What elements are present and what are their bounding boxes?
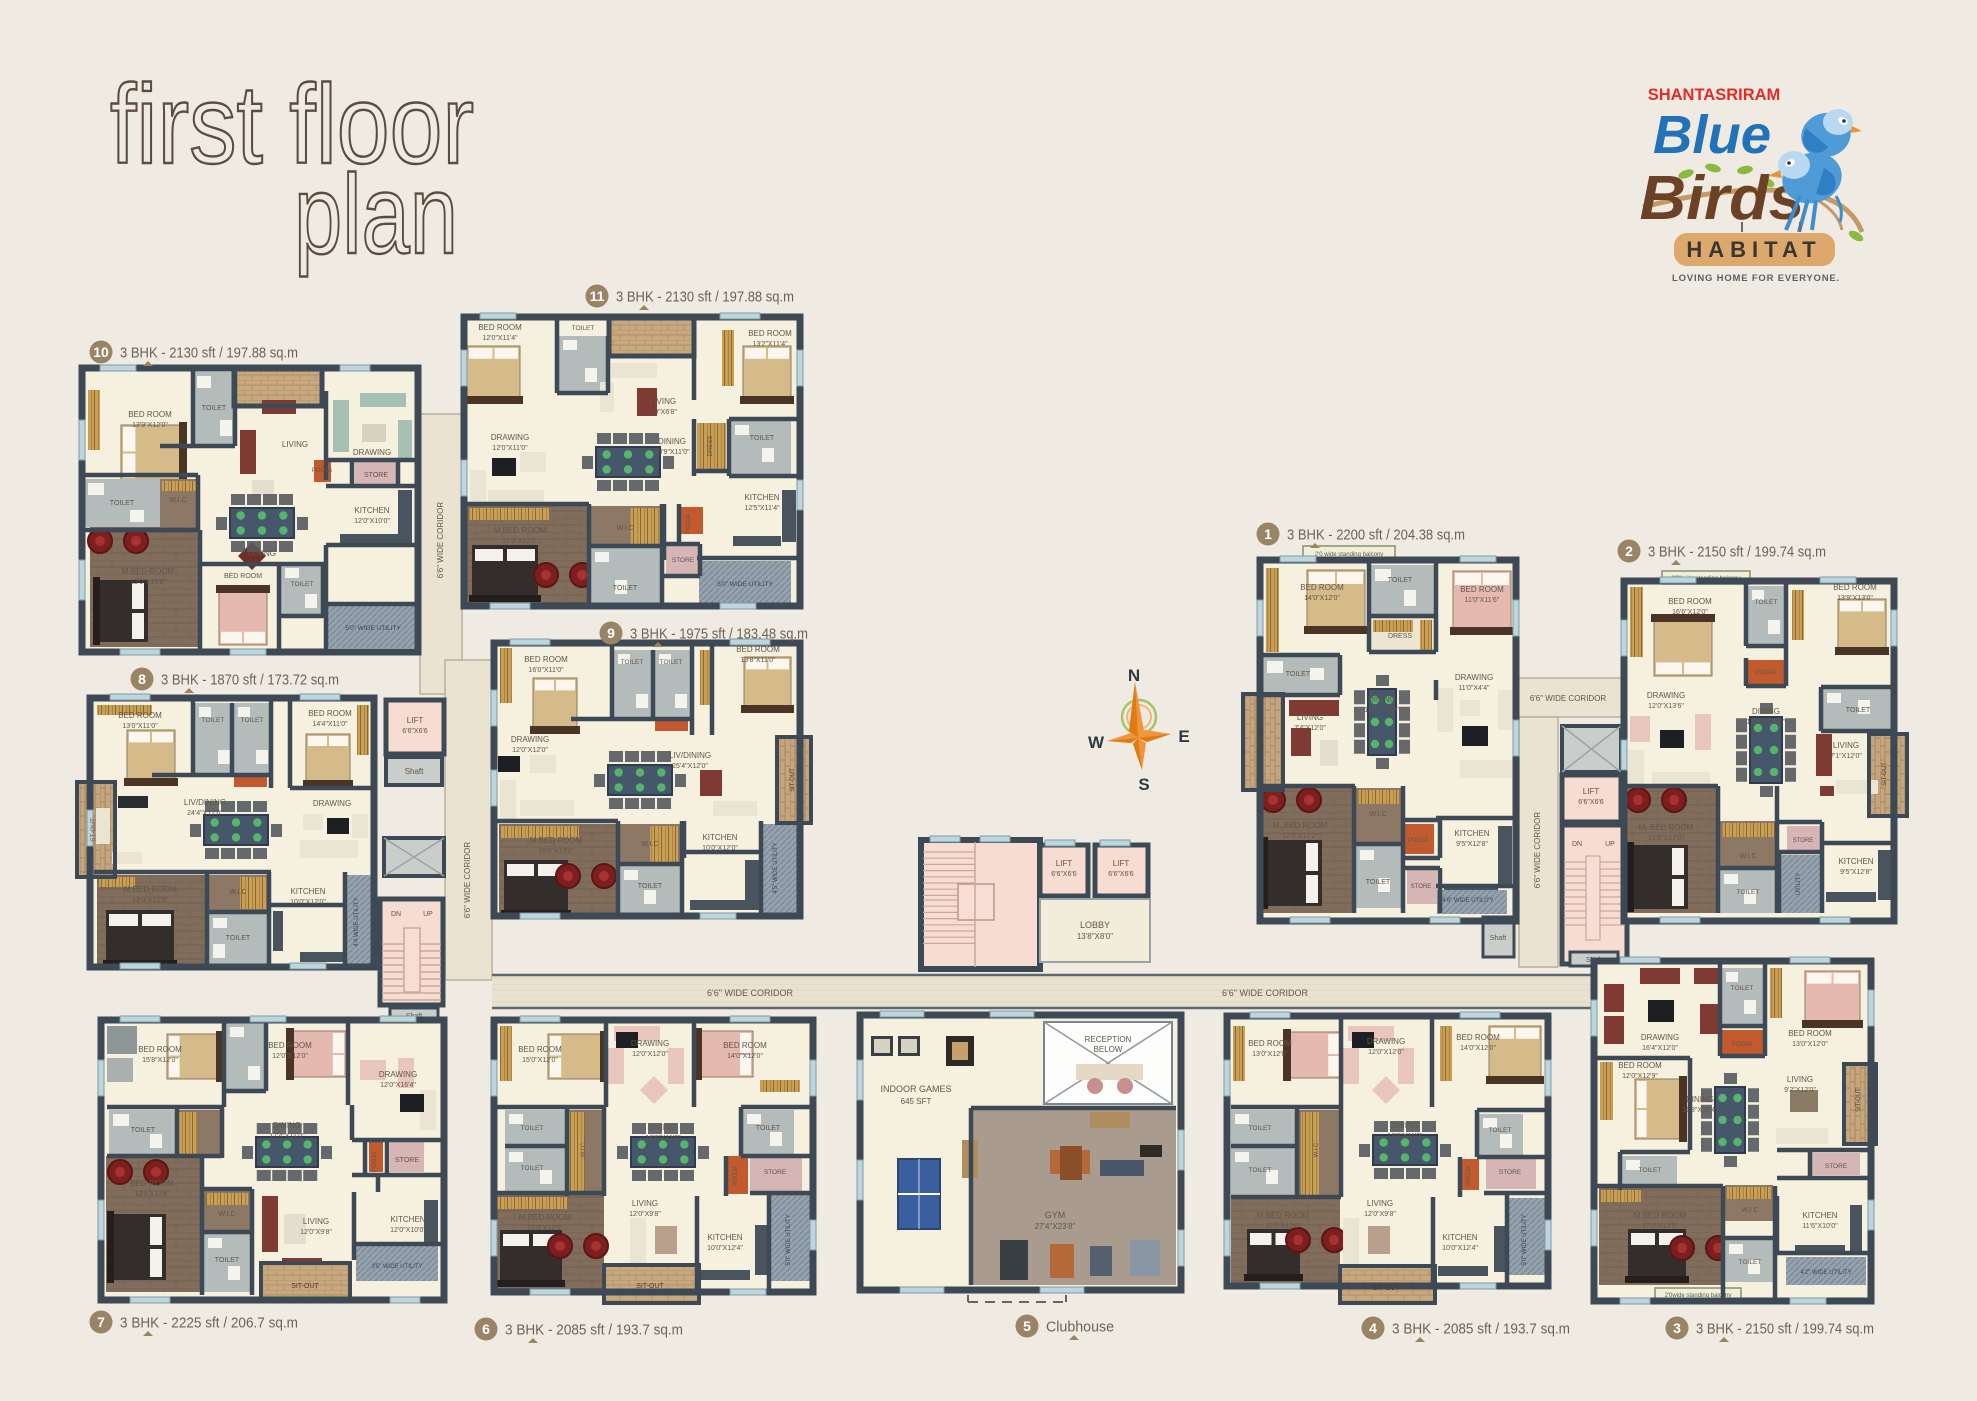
svg-text:9'5"X12'8": 9'5"X12'8" [1840,869,1872,876]
svg-text:BED ROOM: BED ROOM [736,645,780,654]
svg-text:DRAWING: DRAWING [511,735,549,744]
svg-text:10'0"X12'0": 10'0"X12'0" [702,845,738,852]
svg-text:TOILET: TOILET [1731,985,1754,992]
svg-text:BED ROOM: BED ROOM [524,655,568,664]
svg-text:17'0"X12'0": 17'0"X12'0" [502,538,538,545]
svg-text:TOILET: TOILET [756,1125,781,1132]
svg-text:4'6" WIDE UTILITY: 4'6" WIDE UTILITY [1442,898,1493,904]
svg-text:M.BED ROOM: M.BED ROOM [124,885,177,894]
svg-text:3 BHK - 2130 sft / 197.88 sq.m: 3 BHK - 2130 sft / 197.88 sq.m [120,346,298,362]
svg-text:TOILET: TOILET [521,1165,544,1172]
svg-text:POOJA: POOJA [312,468,332,474]
svg-text:4'4 WIDE UTILITY: 4'4 WIDE UTILITY [354,897,360,946]
svg-text:13'0"X16'8": 13'0"X16'8" [130,579,166,586]
svg-text:W: W [1088,733,1105,752]
svg-text:7'1"X12'0": 7'1"X12'0" [1830,753,1862,760]
svg-text:10'0"X12'4": 10'0"X12'4" [707,1245,743,1252]
svg-text:POOJA: POOJA [1756,670,1776,676]
svg-text:DRAWING: DRAWING [631,1039,669,1048]
svg-text:3 BHK - 2150 sft / 199.74 sq.m: 3 BHK - 2150 sft / 199.74 sq.m [1696,1322,1874,1338]
svg-text:12'0"X11'0": 12'0"X11'0" [492,445,528,452]
svg-text:DINING: DINING [248,549,276,558]
svg-text:12'0"X18'4": 12'0"X18'4" [1364,707,1400,714]
svg-text:LIVING: LIVING [632,1199,658,1208]
svg-text:plan: plan [294,152,458,277]
svg-text:12'0"X10'0": 12'0"X10'0" [354,518,390,525]
svg-text:STORE: STORE [764,1169,787,1176]
svg-text:5'0" WIDE UTILITY: 5'0" WIDE UTILITY [1522,1214,1528,1265]
svg-text:LIV/DINING: LIV/DINING [184,798,226,807]
svg-text:TOILET: TOILET [241,717,264,724]
svg-text:6'6"X6'6: 6'6"X6'6 [1051,871,1077,878]
svg-text:2: 2 [1625,543,1633,559]
svg-text:18'9"X11'0": 18'9"X11'0" [654,449,690,456]
svg-text:Clubhouse: Clubhouse [1046,1320,1114,1336]
svg-text:5'0" WIDE UTILITY: 5'0" WIDE UTILITY [717,581,773,588]
svg-text:11: 11 [590,288,605,304]
svg-text:POOJA: POOJA [1408,838,1428,844]
svg-text:SHANTASRIRAM: SHANTASRIRAM [1648,86,1781,104]
svg-text:6: 6 [482,1321,490,1337]
svg-text:S: S [1138,775,1149,794]
svg-text:BED ROOM: BED ROOM [1668,597,1712,606]
svg-text:DN: DN [391,911,401,918]
svg-text:BED ROOM: BED ROOM [1456,1033,1500,1042]
svg-text:TOILET: TOILET [613,585,638,592]
svg-text:DINING: DINING [273,1121,301,1130]
svg-text:BED ROOM: BED ROOM [224,573,262,580]
svg-text:TOILET: TOILET [1388,577,1413,584]
svg-text:12'0"X11'4": 12'0"X11'4" [482,335,518,342]
svg-text:3: 3 [1673,1320,1681,1336]
svg-text:9'2"X12'0": 9'2"X12'0" [1784,1087,1816,1094]
svg-text:3 BHK - 2085 sft / 193.7 sq.m: 3 BHK - 2085 sft / 193.7 sq.m [1392,1322,1570,1338]
svg-text:TOILET: TOILET [202,717,225,724]
svg-text:6'6"X6'6: 6'6"X6'6 [1578,799,1604,806]
svg-text:27'4"X23'8": 27'4"X23'8" [1035,1222,1076,1231]
svg-text:TOILET: TOILET [131,1127,156,1134]
svg-text:M.BED ROOM: M.BED ROOM [519,1213,572,1222]
svg-text:6'6" WIDE CORIDOR: 6'6" WIDE CORIDOR [1530,694,1607,703]
svg-text:LIVING: LIVING [303,1217,329,1226]
svg-text:BED ROOM: BED ROOM [1300,583,1344,592]
svg-text:BED ROOM: BED ROOM [748,329,792,338]
svg-text:LIVING: LIVING [282,440,308,449]
svg-text:DRAWING: DRAWING [353,448,391,457]
svg-text:W.I.C: W.I.C [616,525,633,532]
svg-text:TOILET: TOILET [1286,671,1311,678]
svg-text:KITCHEN: KITCHEN [702,833,737,842]
svg-text:12'0"X17'2": 12'0"X17'2" [1282,833,1318,840]
svg-text:KITCHEN: KITCHEN [390,1215,425,1224]
svg-text:12'5"X11'4": 12'5"X11'4" [744,505,780,512]
svg-text:KITCHEN: KITCHEN [354,506,389,515]
svg-text:12'0"X13'6": 12'0"X13'6" [1648,703,1684,710]
svg-text:DINING: DINING [1752,707,1780,716]
svg-text:LIVING: LIVING [1367,1199,1393,1208]
svg-text:25'4"X12'0": 25'4"X12'0" [672,763,708,770]
svg-text:9'5"X12'8": 9'5"X12'8" [1456,841,1488,848]
svg-text:6'6"X6'6: 6'6"X6'6 [402,728,428,735]
svg-text:12'0"X9'8": 12'0"X9'8" [300,1229,332,1236]
svg-text:15'0"X12'0": 15'0"X12'0" [522,1057,558,1064]
svg-text:GYM: GYM [1045,1210,1066,1220]
svg-text:TOILET: TOILET [1366,879,1391,886]
svg-text:M. BED ROOM: M. BED ROOM [1273,821,1328,830]
svg-text:7: 7 [97,1314,105,1330]
svg-text:LIVING: LIVING [1787,1075,1813,1084]
svg-text:17'0"X12'9": 17'0"X12'9" [1642,1223,1678,1230]
svg-text:11'0"X11'6": 11'0"X11'6" [1465,597,1500,604]
svg-text:TOILET: TOILET [1249,1125,1272,1132]
svg-text:BED ROOM: BED ROOM [130,1179,174,1188]
svg-text:BED ROOM: BED ROOM [308,709,352,718]
svg-text:LIFT: LIFT [1583,787,1600,796]
svg-text:16'6"X11'0": 16'6"X11'0" [645,1135,681,1142]
svg-text:TOILET: TOILET [1639,1167,1662,1174]
svg-text:BED ROOM: BED ROOM [1833,583,1877,592]
svg-text:12'0"X12'0": 12'0"X12'0" [512,747,548,754]
svg-text:LIVING: LIVING [1833,741,1859,750]
svg-text:KITCHEN: KITCHEN [707,1233,742,1242]
svg-text:DRAWING: DRAWING [491,433,529,442]
svg-text:TOILET: TOILET [1846,707,1871,714]
svg-text:9: 9 [607,625,615,641]
svg-text:POOJA: POOJA [686,514,692,534]
svg-text:BED ROOM: BED ROOM [1248,1039,1292,1048]
svg-text:11'8"X16'4": 11'8"X16'4" [1682,1107,1718,1114]
svg-text:3 BHK - 2150 sft / 199.74 sq.m: 3 BHK - 2150 sft / 199.74 sq.m [1648,545,1826,561]
svg-text:LIVING: LIVING [1297,713,1323,722]
svg-text:14'0"X12'0": 14'0"X12'0" [1460,1045,1496,1052]
svg-text:BED ROOM: BED ROOM [138,1045,182,1054]
svg-text:BED ROOM: BED ROOM [1460,585,1504,594]
svg-text:LOVING HOME FOR EVERYONE.: LOVING HOME FOR EVERYONE. [1672,273,1840,284]
svg-text:INDOOR GAMES: INDOOR GAMES [880,1084,951,1094]
svg-text:10'0"X12'0": 10'0"X12'0" [290,899,326,906]
svg-text:KITCHEN: KITCHEN [744,493,779,502]
svg-text:W.I.C: W.I.C [218,1211,235,1218]
svg-text:SIT-OUT: SIT-OUT [291,1283,319,1290]
svg-text:BED ROOM: BED ROOM [1618,1061,1662,1070]
svg-text:TOILET: TOILET [226,935,251,942]
svg-text:12'0"X9'8": 12'0"X9'8" [1364,1211,1396,1218]
svg-text:12'0"X12'0": 12'0"X12'0" [1368,1049,1404,1056]
svg-text:TOILET: TOILET [215,1257,240,1264]
svg-text:12'0"X9'8": 12'0"X9'8" [629,1211,661,1218]
svg-text:13'9"X13'0": 13'9"X13'0" [1837,595,1873,602]
svg-text:7'4"X12'0": 7'4"X12'0" [1294,725,1326,732]
svg-text:10'0"X12'4": 10'0"X12'4" [1442,1245,1478,1252]
svg-text:12'0"X16'4": 12'0"X16'4" [380,1082,416,1089]
svg-text:6'6" WIDE CORIDOR: 6'6" WIDE CORIDOR [463,842,472,919]
svg-text:TOILET: TOILET [1739,1259,1762,1266]
svg-text:3 BHK - 2130 sft / 197.88 sq: 3 BHK - 2130 sft / 197.88 sq.m [616,290,794,306]
svg-text:Shaft: Shaft [1490,935,1506,942]
svg-text:N: N [1128,666,1140,685]
svg-text:15'0"X12'0": 15'0"X12'0" [527,1225,563,1232]
svg-text:3 BHK - 2225 sft / 206.7 sq.m: 3 BHK - 2225 sft / 206.7 sq.m [120,1316,298,1332]
svg-text:SIT-OUT: SIT-OUT [790,768,796,792]
svg-text:16'6"X11'0": 16'6"X11'0" [1387,1133,1423,1140]
svg-text:SIT-OUT: SIT-OUT [1882,762,1888,786]
svg-text:KITCHEN: KITCHEN [1802,1211,1837,1220]
svg-text:4'5" WIDE UTILITY: 4'5" WIDE UTILITY [773,842,779,893]
svg-text:DRAWING: DRAWING [313,799,351,808]
svg-text:645 SFT: 645 SFT [901,1097,932,1106]
svg-text:Blue: Blue [1653,105,1771,165]
svg-text:BED ROOM: BED ROOM [478,323,522,332]
svg-text:15'8"X12'0": 15'8"X12'0" [142,1057,178,1064]
svg-text:KITCHEN: KITCHEN [1454,829,1489,838]
svg-text:4: 4 [1369,1320,1377,1336]
svg-text:DINING: DINING [1368,695,1396,704]
svg-text:M.BED ROOM: M.BED ROOM [122,567,175,576]
svg-text:10: 10 [93,344,109,360]
svg-text:STORE: STORE [1499,1169,1522,1176]
svg-text:4'2" WIDE UTILITY: 4'2" WIDE UTILITY [1800,1270,1851,1276]
svg-text:5'0" WIDE UTILITY: 5'0" WIDE UTILITY [345,625,401,632]
svg-text:W.I.C: W.I.C [1739,853,1756,860]
svg-text:M.BED ROOM: M.BED ROOM [1634,1211,1687,1220]
svg-text:W.I.C: W.I.C [641,841,658,848]
svg-text:16'0"X11'0": 16'0"X11'0" [528,667,564,674]
svg-text:16'6"X12'0": 16'6"X12'0" [1672,609,1708,616]
svg-text:DRAWING: DRAWING [1455,673,1493,682]
svg-text:TOILET: TOILET [202,405,227,412]
svg-text:STORE: STORE [672,557,695,564]
svg-text:6'6" WIDE CORIDOR: 6'6" WIDE CORIDOR [707,988,793,998]
svg-text:LIFT: LIFT [407,716,424,725]
svg-text:M.BED ROOM: M.BED ROOM [530,836,583,845]
svg-text:POOJA: POOJA [1466,1166,1472,1186]
svg-text:13'0"X12'0": 13'0"X12'0" [132,897,168,904]
svg-text:DRAWING: DRAWING [1641,1033,1679,1042]
svg-text:DINING: DINING [1391,1121,1419,1130]
svg-text:13'2"X11'4": 13'2"X11'4" [752,341,788,348]
svg-text:STORE: STORE [364,472,388,479]
svg-text:LIV/DINING: LIV/DINING [669,751,711,760]
svg-text:11'0"X4'4": 11'0"X4'4" [1458,685,1490,692]
svg-text:DINING: DINING [1686,1095,1714,1104]
svg-text:TOILET: TOILET [750,435,775,442]
svg-text:TOILET: TOILET [621,659,644,666]
svg-text:UP: UP [1605,841,1615,848]
svg-text:M. BED ROOM: M. BED ROOM [1639,823,1694,832]
svg-text:LOBBY: LOBBY [1080,920,1110,930]
svg-text:POOJA: POOJA [1732,1042,1752,1048]
svg-text:5: 5 [1023,1318,1031,1334]
svg-text:3 BHK - 2200 sft / 204.38 sq.m: 3 BHK - 2200 sft / 204.38 sq.m [1287,528,1465,544]
svg-text:13'9"X12'0": 13'9"X12'0" [132,422,168,429]
svg-text:POOJA: POOJA [372,1152,378,1172]
svg-text:KITCHEN: KITCHEN [1838,857,1873,866]
svg-text:BED ROOM: BED ROOM [723,1041,767,1050]
svg-text:12'0"X10'0": 12'0"X10'0" [390,1227,426,1234]
svg-text:16'4"X12'0": 16'4"X12'0" [1642,1045,1678,1052]
svg-text:TOILET: TOILET [638,883,663,890]
svg-text:3 BHK - 2085 sft / 193.7 sq.: 3 BHK - 2085 sft / 193.7 sq.m [505,1323,683,1339]
svg-text:LIVING: LIVING [650,397,676,406]
svg-text:15'0"X12'0": 15'0"X12'0" [1265,1223,1301,1230]
svg-text:12'0"X12'9": 12'0"X12'9" [1622,1073,1658,1080]
svg-text:13'0"X11'0": 13'0"X11'0" [122,723,158,730]
svg-text:TOILET: TOILET [291,581,314,588]
svg-text:16'8"X12'0": 16'8"X12'0" [538,848,574,855]
svg-text:6'6" WIDE CORIDOR: 6'6" WIDE CORIDOR [1222,988,1308,998]
svg-text:W.I.C: W.I.C [1369,811,1386,818]
svg-text:BED ROOM: BED ROOM [128,410,172,419]
svg-text:14'0"X12'0": 14'0"X12'0" [727,1053,763,1060]
svg-text:BED ROOM: BED ROOM [1788,1029,1832,1038]
svg-text:3 BHK - 1975 sft / 183.48 sq: 3 BHK - 1975 sft / 183.48 sq.m [630,627,808,643]
svg-text:1: 1 [1264,526,1272,542]
svg-text:12'5"X17'0": 12'5"X17'0" [1648,835,1684,842]
svg-text:HABITAT: HABITAT [1686,237,1821,262]
svg-text:14'0"X12'0": 14'0"X12'0" [1304,595,1340,602]
svg-text:11'6"X10'0": 11'6"X10'0" [1802,1223,1838,1230]
svg-text:13'8"X11'0": 13'8"X11'0" [740,657,776,664]
svg-text:LIFT: LIFT [1056,859,1073,868]
svg-text:3'5" WIDE UTILITY: 3'5" WIDE UTILITY [371,1264,422,1270]
svg-text:LIFT: LIFT [1113,859,1130,868]
svg-text:W.I.C: W.I.C [169,497,186,504]
svg-text:TOILET: TOILET [1737,889,1760,896]
svg-text:SIT-OUT: SIT-OUT [636,1283,664,1290]
svg-text:BELOW: BELOW [1094,1045,1123,1054]
svg-text:12'0"X12'0": 12'0"X12'0" [632,1051,668,1058]
svg-text:13'8"X8'0": 13'8"X8'0" [1077,932,1113,941]
svg-text:TOILET: TOILET [572,325,595,332]
svg-text:W.I.C: W.I.C [581,1142,587,1157]
svg-text:TOILET: TOILET [1755,599,1778,606]
svg-text:5'0" WIDE UTILITY: 5'0" WIDE UTILITY [786,1214,792,1265]
svg-text:M.BED ROOM: M.BED ROOM [1257,1211,1310,1220]
svg-text:W.I.C: W.I.C [229,889,246,896]
svg-text:RECEPTION: RECEPTION [1085,1035,1132,1044]
svg-text:TOILET: TOILET [521,1125,544,1132]
svg-text:POOJA: POOJA [733,1166,739,1186]
svg-text:12'0"X11'4": 12'0"X11'4" [134,1191,170,1198]
svg-text:DRAWING: DRAWING [1367,1037,1405,1046]
svg-text:6'6" WIDE CORIDOR: 6'6" WIDE CORIDOR [1533,812,1542,889]
svg-text:STORE: STORE [1825,1163,1848,1170]
svg-text:KITCHEN: KITCHEN [1442,1233,1477,1242]
svg-text:ST-OUT: ST-OUT [90,818,97,842]
svg-text:DINING: DINING [649,1123,677,1132]
svg-text:TOILET: TOILET [1249,1167,1272,1174]
svg-text:M.BED ROOM: M.BED ROOM [494,526,547,535]
svg-text:KITCHEN: KITCHEN [290,887,325,896]
svg-text:STORE: STORE [1411,884,1432,890]
svg-text:UTILITY: UTILITY [1796,873,1802,895]
svg-text:2'0"X6'8": 2'0"X6'8" [649,409,677,416]
svg-text:6'6" WIDE CORIDOR: 6'6" WIDE CORIDOR [436,502,445,579]
svg-text:3 BHK - 1870 sft / 173.72 sq.m: 3 BHK - 1870 sft / 173.72 sq.m [161,673,339,689]
svg-text:13'0"X12'0": 13'0"X12'0" [1792,1041,1828,1048]
svg-text:DINING: DINING [658,437,686,446]
svg-text:BED ROOM: BED ROOM [118,711,162,720]
svg-text:W.I.C: W.I.C [1741,1207,1758,1214]
svg-text:TOILET: TOILET [1489,1127,1512,1134]
svg-text:SIT-OUT: SIT-OUT [1259,726,1265,750]
svg-text:TOILET: TOILET [660,659,683,666]
svg-text:17'4"X11'0": 17'4"X11'0" [269,1133,305,1140]
svg-text:W.I.C: W.I.C [1314,1142,1320,1157]
svg-text:DRESS: DRESS [1388,633,1412,640]
svg-text:12'0"X12'0": 12'0"X12'0" [272,1053,308,1060]
svg-text:13'0"X12'0": 13'0"X12'0" [1252,1051,1288,1058]
svg-text:DRESS: DRESS [708,436,714,457]
svg-text:STORE: STORE [395,1157,419,1164]
svg-text:TOILET: TOILET [110,500,135,507]
svg-text:BED ROOM: BED ROOM [518,1045,562,1054]
svg-text:E: E [1178,727,1189,746]
svg-text:BED ROOM: BED ROOM [268,1041,312,1050]
svg-text:SIT-OUT: SIT-OUT [1372,1285,1400,1292]
svg-text:SIT-OUT: SIT-OUT [1856,1088,1862,1112]
svg-text:UP: UP [423,911,433,918]
svg-text:DRAWING: DRAWING [379,1070,417,1079]
svg-text:6'6"X6'6: 6'6"X6'6 [1108,871,1134,878]
svg-text:14'4"X11'0": 14'4"X11'0" [312,721,348,728]
svg-text:8: 8 [138,671,146,687]
svg-text:DN: DN [1572,841,1582,848]
svg-text:Shaft: Shaft [405,767,424,776]
svg-text:24'4"X12'0": 24'4"X12'0" [187,810,223,817]
svg-text:DRAWING: DRAWING [1647,691,1685,700]
svg-text:STORE: STORE [1793,838,1814,844]
svg-text:13'9"X11'10": 13'9"X11'10" [1746,719,1786,726]
